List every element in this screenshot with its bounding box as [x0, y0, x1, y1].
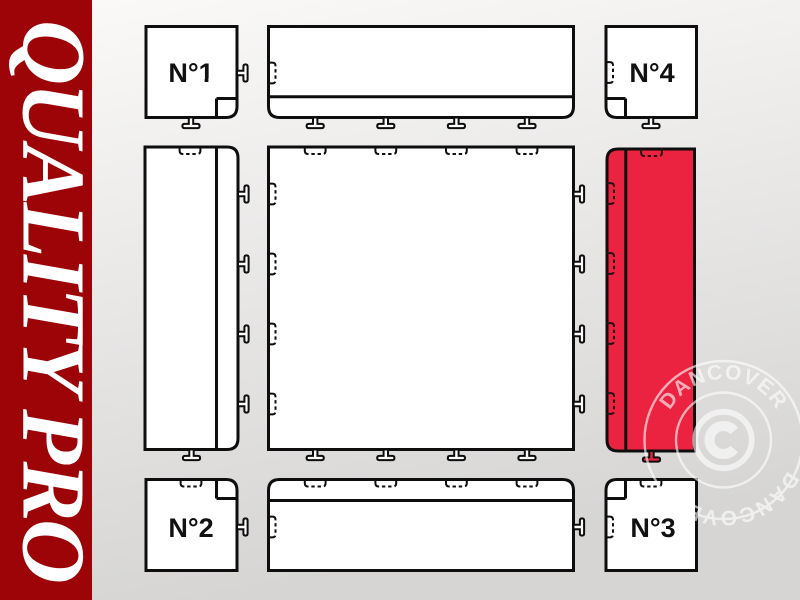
- svg-text:N°1: N°1: [168, 58, 213, 88]
- svg-text:QUALITY PRO: QUALITY PRO: [4, 20, 103, 584]
- svg-text:N°3: N°3: [630, 513, 675, 543]
- svg-text:N°2: N°2: [168, 513, 213, 543]
- svg-text:N°4: N°4: [629, 58, 674, 88]
